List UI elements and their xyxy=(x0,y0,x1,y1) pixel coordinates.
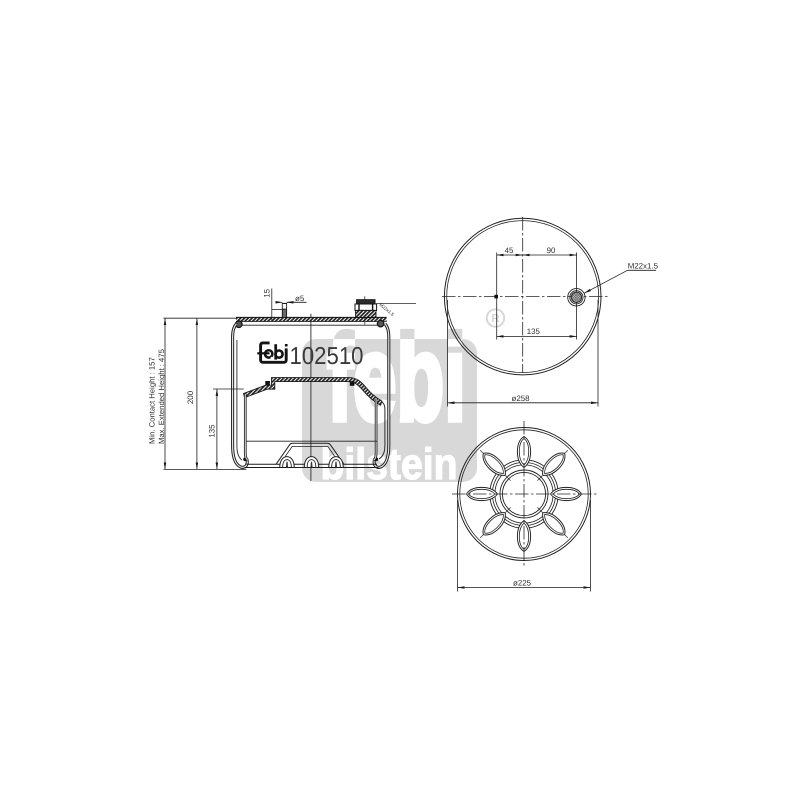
svg-text:ø5: ø5 xyxy=(295,294,305,303)
svg-text:135: 135 xyxy=(207,424,216,438)
svg-text:Max. Extended Height : 475: Max. Extended Height : 475 xyxy=(157,349,166,444)
svg-text:ø225: ø225 xyxy=(513,578,532,587)
svg-text:ø258: ø258 xyxy=(512,394,531,403)
svg-text:45: 45 xyxy=(505,246,514,255)
svg-text:200: 200 xyxy=(186,390,195,404)
svg-text:R: R xyxy=(491,313,500,325)
svg-text:15: 15 xyxy=(263,288,272,297)
svg-text:M22x1.5: M22x1.5 xyxy=(628,261,659,270)
svg-text:135: 135 xyxy=(527,327,541,336)
svg-text:Min. Contact Height : 157: Min. Contact Height : 157 xyxy=(148,357,157,444)
svg-text:102510: 102510 xyxy=(290,343,364,370)
svg-text:90: 90 xyxy=(547,246,556,255)
